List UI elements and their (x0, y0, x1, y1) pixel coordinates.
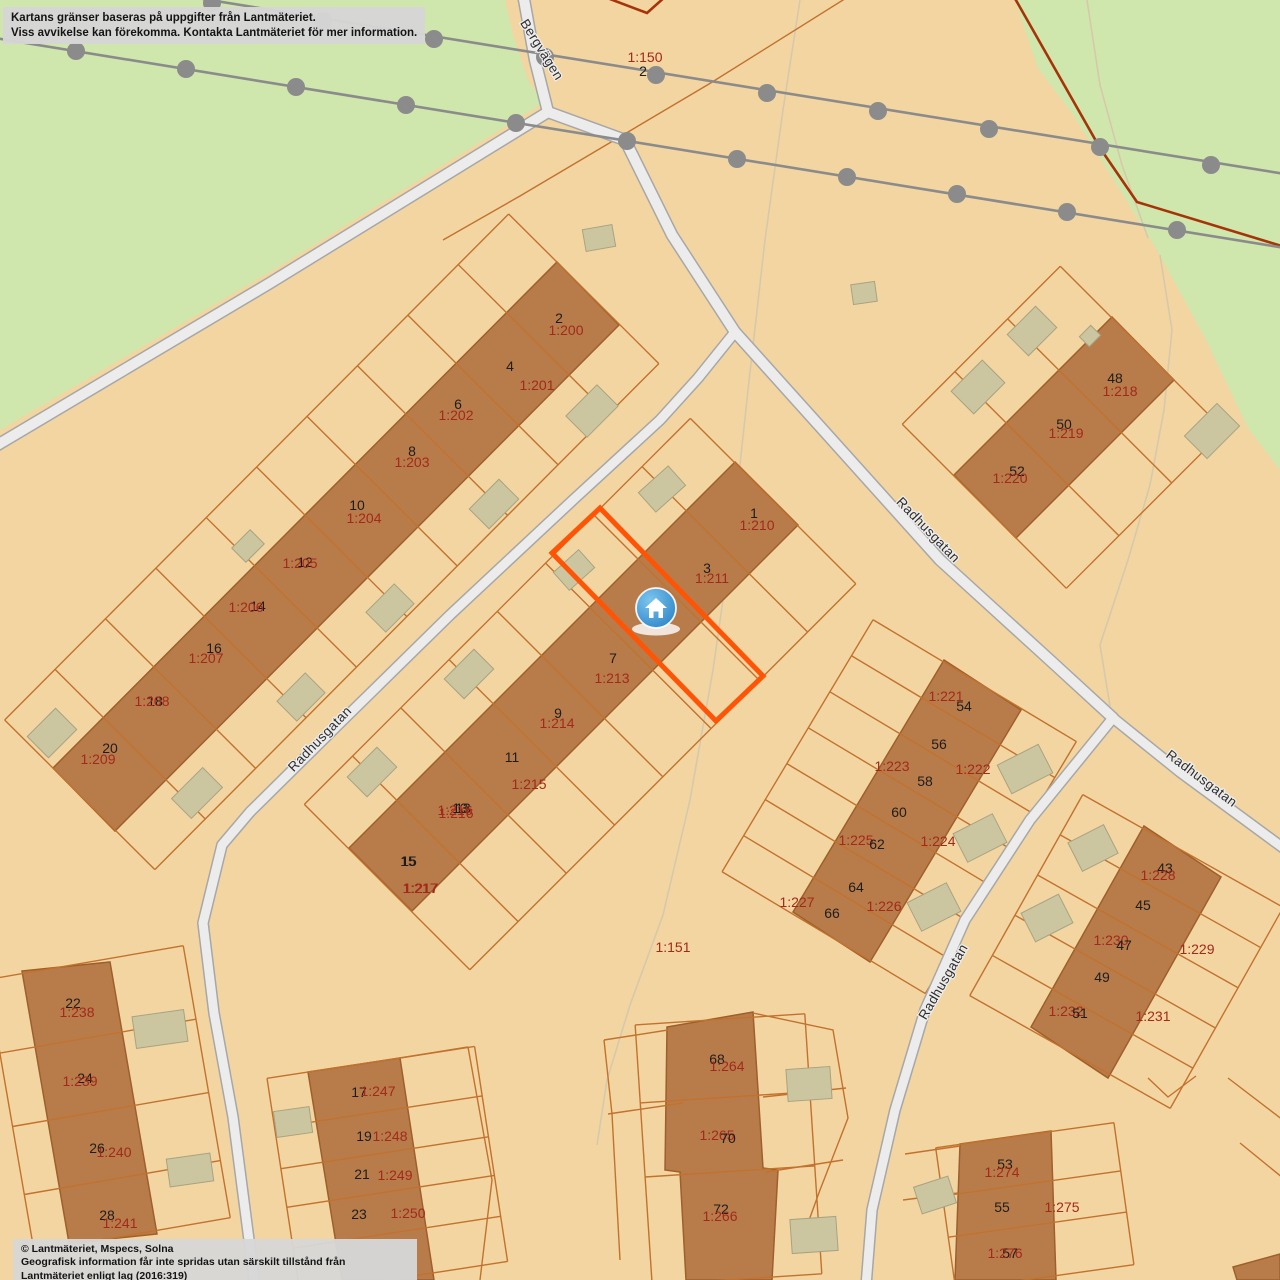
power-pole-icon (618, 132, 636, 150)
shed-building (582, 225, 615, 252)
power-pole-icon (507, 114, 525, 132)
power-pole-icon (728, 150, 746, 168)
map-disclaimer: Kartans gränser baseras på uppgifter frå… (3, 7, 425, 44)
power-pole-icon (67, 42, 85, 60)
attribution-line-1: © Lantmäteriet, Mspecs, Solna (21, 1243, 409, 1256)
shed-building (786, 1067, 832, 1102)
map-canvas[interactable]: 1:15021:15121:20041:20161:20281:203101:2… (0, 0, 1280, 1280)
power-pole-icon (397, 96, 415, 114)
power-pole-icon (177, 60, 195, 78)
shed-building (166, 1153, 213, 1187)
attribution-line-2: Geografisk information får inte spridas … (21, 1256, 409, 1280)
shed-building (132, 1010, 188, 1049)
power-pole-icon (1202, 156, 1220, 174)
shed-building (273, 1107, 312, 1138)
disclaimer-line-1: Kartans gränser baseras på uppgifter frå… (11, 11, 417, 26)
power-pole-icon (869, 102, 887, 120)
power-pole-icon (948, 185, 966, 203)
power-pole-icon (838, 168, 856, 186)
power-pole-icon (425, 30, 443, 48)
building-block (955, 1131, 1056, 1280)
power-pole-icon (1168, 221, 1186, 239)
power-pole-icon (647, 66, 665, 84)
power-pole-icon (980, 120, 998, 138)
shed-building (790, 1216, 838, 1253)
power-pole-icon (1091, 138, 1109, 156)
shed-building (851, 281, 878, 304)
cadastral-map-screenshot: 1:15021:15121:20041:20161:20281:203101:2… (0, 0, 1280, 1280)
map-attribution: © Lantmäteriet, Mspecs, Solna Geografisk… (13, 1239, 417, 1280)
power-pole-icon (536, 48, 554, 66)
disclaimer-line-2: Viss avvikelse kan förekomma. Kontakta L… (11, 26, 417, 41)
power-pole-icon (1058, 203, 1076, 221)
power-pole-icon (287, 78, 305, 96)
power-pole-icon (758, 84, 776, 102)
